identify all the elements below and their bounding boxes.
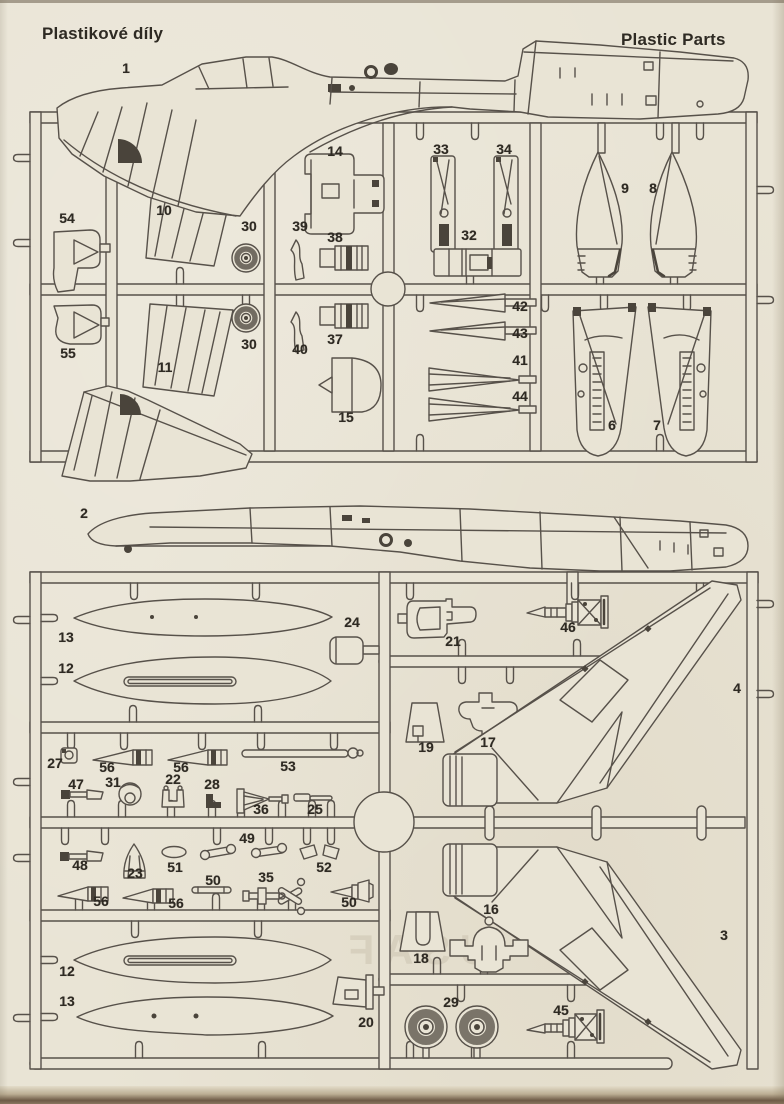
part-44-drawing	[429, 398, 536, 421]
part-24-drawing	[330, 637, 379, 664]
part-1-fuselage-drawing	[57, 41, 748, 216]
part-47-drawing	[61, 790, 103, 799]
part-40-drawing	[291, 312, 304, 352]
part-56-rocket-1-drawing	[93, 750, 152, 765]
part-56-rocket-2-drawing	[168, 750, 227, 765]
part-6-drawing	[573, 303, 636, 456]
sprue-gate-circle-bottom	[354, 792, 414, 852]
part-2-fuselage-drawing	[62, 386, 748, 571]
part-15-drawing	[319, 358, 381, 412]
part-27-drawing	[61, 748, 77, 763]
part-51-drawing	[162, 847, 186, 858]
part-32-drawing	[434, 249, 521, 276]
part-41-drawing	[429, 368, 536, 391]
part-56-rocket-3-drawing	[58, 887, 108, 901]
part-53-drawing	[242, 748, 363, 758]
part-52-drawing	[300, 845, 339, 859]
part-18-drawing	[400, 912, 445, 951]
sprue-gate-circle-top	[371, 272, 405, 306]
part-20-drawing	[333, 975, 384, 1009]
part-30-wheel-lower-drawing	[232, 304, 260, 332]
part-34-drawing	[494, 156, 518, 252]
part-31-drawing	[119, 783, 141, 805]
sprue-layout-diagram	[0, 0, 784, 1104]
part-49-links-drawing	[201, 844, 287, 860]
part-22-drawing	[162, 786, 184, 807]
part-33-drawing	[431, 156, 455, 252]
instruction-sheet-page: USAF	[0, 0, 784, 1104]
part-56-rocket-4-drawing	[123, 889, 173, 903]
part-23-drawing	[124, 844, 145, 878]
part-36-drawing	[237, 789, 288, 813]
part-50-nozzle-drawing	[331, 880, 373, 902]
part-9-drawing	[576, 152, 622, 277]
part-39-drawing	[291, 240, 304, 280]
part-13-upper-tank-drawing	[74, 599, 332, 636]
part-12-lower-tank-drawing	[74, 937, 331, 983]
part-48-drawing	[60, 851, 103, 861]
part-30-wheel-upper-drawing	[232, 244, 260, 272]
part-19-drawing	[406, 703, 444, 742]
part-8-drawing	[650, 152, 696, 277]
part-13-lower-tank-drawing	[77, 997, 333, 1035]
part-29-wheels-drawing	[405, 1006, 498, 1048]
part-21-drawing	[398, 599, 476, 638]
part-37-drawing	[320, 304, 368, 328]
part-50-rod-drawing	[192, 887, 231, 893]
part-45-drawing	[527, 1010, 604, 1043]
part-38-drawing	[320, 246, 368, 270]
page-title-czech: Plastikové díly	[42, 24, 163, 44]
part-12-upper-tank-drawing	[74, 657, 331, 704]
part-43-drawing	[430, 322, 536, 340]
part-54-drawing	[54, 230, 111, 292]
page-title-english: Plastic Parts	[621, 30, 726, 50]
part-55-drawing	[54, 305, 109, 344]
part-14-drawing	[305, 154, 384, 234]
part-25-drawing	[294, 794, 332, 801]
part-42-drawing	[430, 294, 536, 312]
part-7-drawing	[648, 303, 711, 456]
part-11-drawing	[143, 304, 233, 396]
